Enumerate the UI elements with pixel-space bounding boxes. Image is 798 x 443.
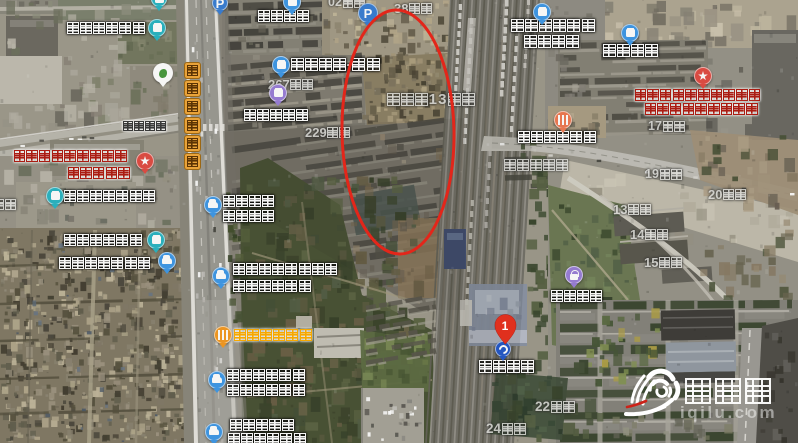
svg-text:1: 1 — [502, 319, 509, 333]
